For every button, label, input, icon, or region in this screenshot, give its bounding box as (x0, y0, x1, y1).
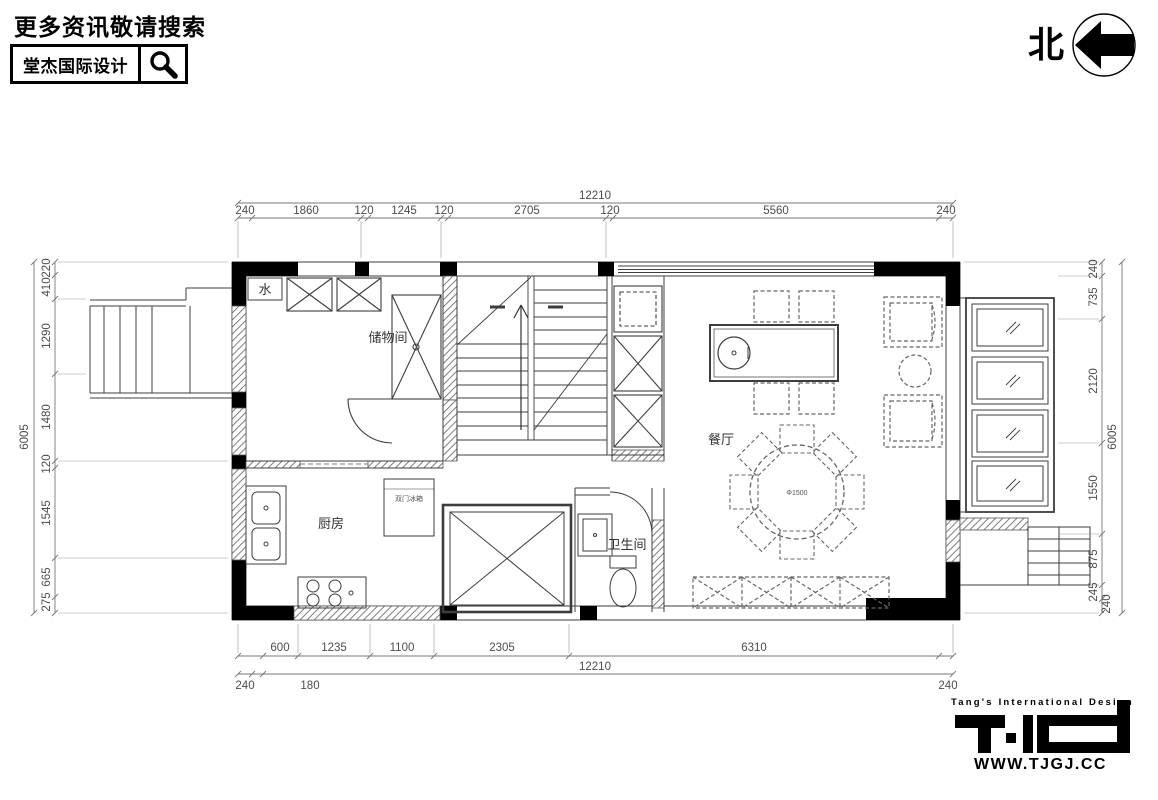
stove (298, 577, 366, 608)
svg-text:410: 410 (41, 277, 53, 296)
bottom-cabinet-row (693, 577, 889, 608)
svg-text:600: 600 (270, 642, 289, 654)
svg-text:1290: 1290 (41, 323, 53, 349)
island-chairs (754, 291, 834, 414)
svg-text:12210: 12210 (579, 190, 611, 202)
svg-text:120: 120 (434, 205, 453, 217)
bathroom-label: 卫生间 (607, 537, 646, 552)
svg-text:240: 240 (1101, 594, 1113, 613)
rear-outside-stairs (960, 527, 1090, 585)
svg-text:665: 665 (41, 567, 53, 586)
svg-text:275: 275 (41, 592, 53, 611)
svg-text:1245: 1245 (391, 205, 417, 217)
island-counter (710, 325, 838, 381)
svg-text:240: 240 (1088, 259, 1100, 278)
svg-text:875: 875 (1088, 549, 1100, 568)
svg-text:12210: 12210 (579, 661, 611, 673)
svg-text:1100: 1100 (390, 642, 415, 654)
water-label: 水 (258, 282, 271, 297)
staircase (457, 276, 607, 440)
floor-plan: 水 储物间 厨房 双门冰箱 卫生间 餐厅 Φ1500 (0, 0, 1158, 800)
svg-text:240: 240 (938, 680, 957, 692)
svg-text:240: 240 (235, 680, 254, 692)
svg-text:6005: 6005 (19, 424, 31, 450)
svg-text:6005: 6005 (1107, 424, 1119, 450)
svg-text:5560: 5560 (763, 205, 789, 217)
elevator-shaft (443, 505, 571, 612)
storage-label: 储物间 (368, 330, 407, 345)
svg-text:1860: 1860 (293, 205, 319, 217)
footer-website: WWW.TJGJ.CC (974, 756, 1107, 774)
outer-walls (232, 262, 960, 620)
kitchen-label: 厨房 (318, 516, 344, 531)
refrigerator (384, 479, 434, 536)
svg-text:180: 180 (300, 680, 319, 692)
svg-text:1480: 1480 (41, 404, 53, 430)
svg-text:2305: 2305 (489, 642, 515, 654)
duct-shaft-boxes (614, 286, 662, 447)
svg-text:2705: 2705 (514, 205, 540, 217)
svg-text:735: 735 (1088, 287, 1100, 306)
wall-piers (232, 262, 960, 620)
window-armchairs (884, 297, 942, 447)
svg-text:120: 120 (41, 454, 53, 473)
page: 更多资讯敬请搜索 堂杰国际设计 北 (0, 0, 1158, 800)
svg-text:1235: 1235 (321, 642, 347, 654)
svg-text:240: 240 (936, 205, 955, 217)
svg-text:245: 245 (1088, 582, 1100, 601)
svg-text:1545: 1545 (41, 500, 53, 526)
storage-closets (287, 278, 441, 443)
svg-text:6310: 6310 (741, 642, 767, 654)
dimension-lines (31, 200, 1125, 677)
svg-text:240: 240 (235, 205, 254, 217)
table-size-note: Φ1500 (786, 490, 807, 497)
tjid-logo (948, 700, 1148, 760)
bay-window-panels (960, 298, 1054, 512)
fridge-label: 双门冰箱 (395, 494, 423, 503)
svg-text:2120: 2120 (1088, 368, 1100, 394)
svg-text:120: 120 (600, 205, 619, 217)
svg-text:220: 220 (41, 258, 53, 277)
svg-text:1550: 1550 (1088, 475, 1100, 501)
kitchen-sink-counter (246, 486, 286, 564)
entry-porch-stairs (90, 288, 232, 398)
dining-label: 餐厅 (708, 432, 734, 447)
svg-text:120: 120 (354, 205, 373, 217)
